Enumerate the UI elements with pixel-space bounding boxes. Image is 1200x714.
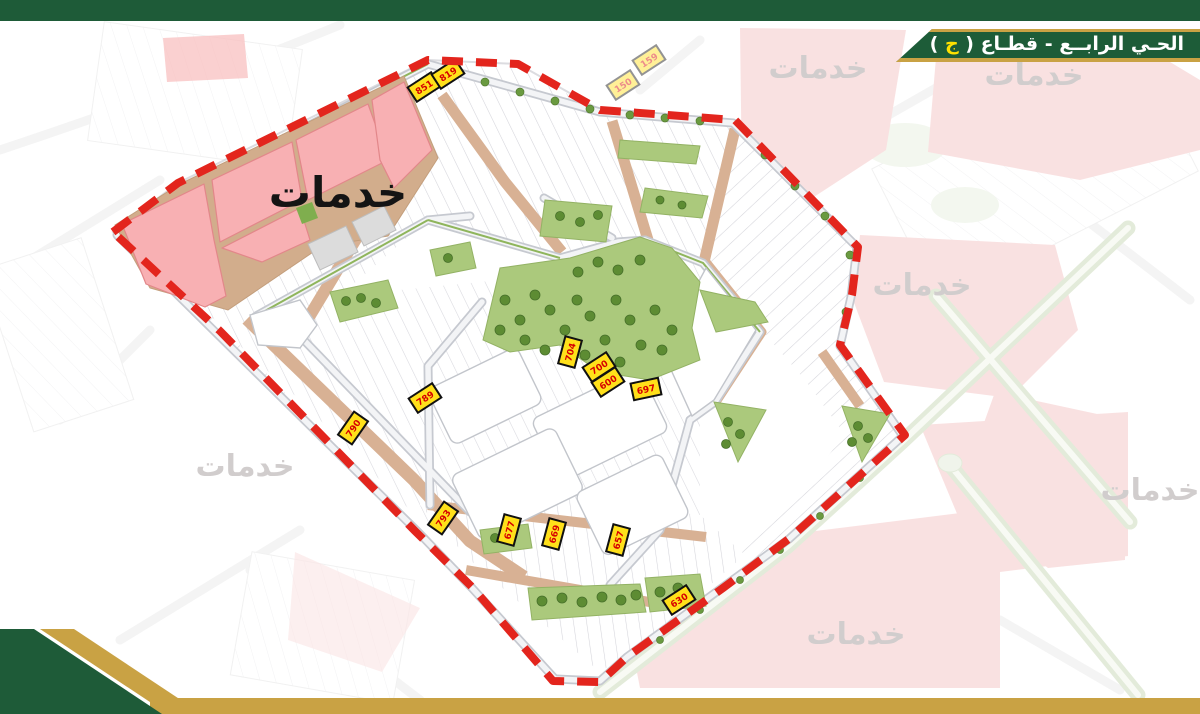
context-service-label: خدمات bbox=[196, 449, 295, 484]
context-service-label: خدمات bbox=[873, 268, 972, 303]
context-service-label: خدمات bbox=[985, 58, 1084, 93]
top-green-bar bbox=[0, 0, 1200, 21]
context-service-label: خدمات bbox=[769, 51, 868, 86]
plan-page: خدماتخدماتخدماتخدماتخدماتخدمات bbox=[0, 0, 1200, 714]
title-banner: الحـي الرابــع - قطـاع ( ج ) bbox=[896, 29, 1200, 62]
page-title: الحـي الرابــع - قطـاع ( ج ) bbox=[896, 32, 1200, 57]
plot-number-label: 150 bbox=[607, 70, 640, 100]
context-service-label: خدمات bbox=[1101, 473, 1200, 508]
footer-gold-bar bbox=[150, 698, 1200, 714]
sector-map: خدماتخدماتخدماتخدماتخدماتخدمات bbox=[0, 0, 1200, 714]
sector-letter: ج bbox=[945, 33, 959, 55]
context-service-label: خدمات bbox=[807, 617, 906, 652]
service-zone-label: خدمات bbox=[269, 168, 408, 217]
